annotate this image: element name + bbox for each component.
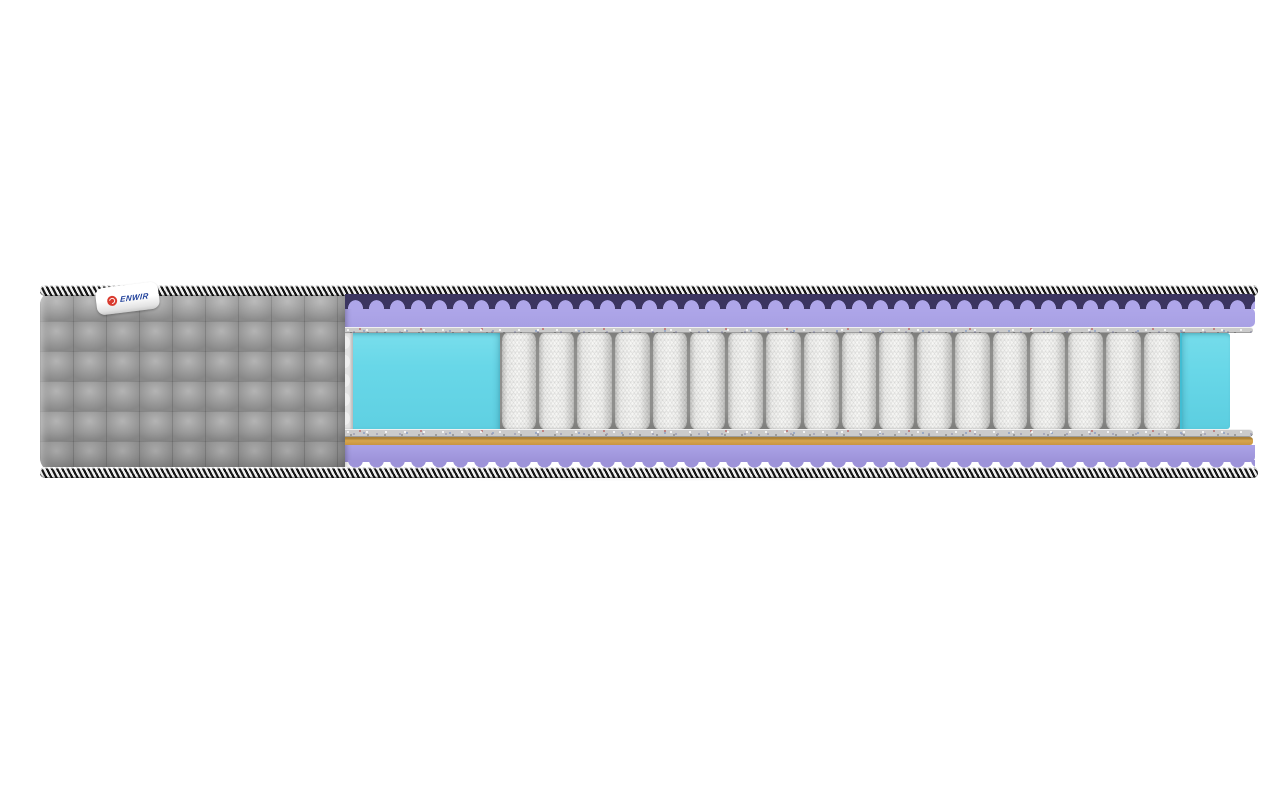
spring-pocket (955, 333, 990, 429)
spring-pocket (1030, 333, 1065, 429)
spring-pocket (1068, 333, 1103, 429)
foam-wave-top (345, 294, 1255, 309)
foam-wave-bottom (345, 460, 1255, 472)
spring-pocket (993, 333, 1028, 429)
spring-pocket (842, 333, 877, 429)
product-image-canvas: ENWIR (0, 0, 1280, 800)
felt-layer-top (345, 327, 1253, 333)
coir-layer (345, 437, 1253, 445)
mattress-cutaway: ENWIR (40, 285, 1258, 478)
spring-pocket (917, 333, 952, 429)
spring-pocket (879, 333, 914, 429)
spring-pocket (502, 333, 537, 429)
quilted-cover (40, 291, 345, 472)
spring-pocket (577, 333, 612, 429)
cross-section (345, 285, 1258, 478)
spring-pocket (804, 333, 839, 429)
felt-layer-bottom (345, 429, 1253, 437)
brand-label-text: ENWIR (120, 292, 149, 304)
spring-pocket (539, 333, 574, 429)
spring-pocket (1106, 333, 1141, 429)
spring-pocket (653, 333, 688, 429)
spring-pocket (690, 333, 725, 429)
foam-block-left (352, 333, 500, 429)
pocket-springs (500, 333, 1180, 429)
spring-pocket (766, 333, 801, 429)
spring-pocket (728, 333, 763, 429)
foam-block-right (1180, 333, 1230, 429)
spring-pocket (1144, 333, 1179, 429)
spring-pocket (615, 333, 650, 429)
brand-logo-icon (106, 295, 117, 306)
cover-cut-edge (345, 333, 353, 429)
foam-layer-top (345, 308, 1255, 327)
